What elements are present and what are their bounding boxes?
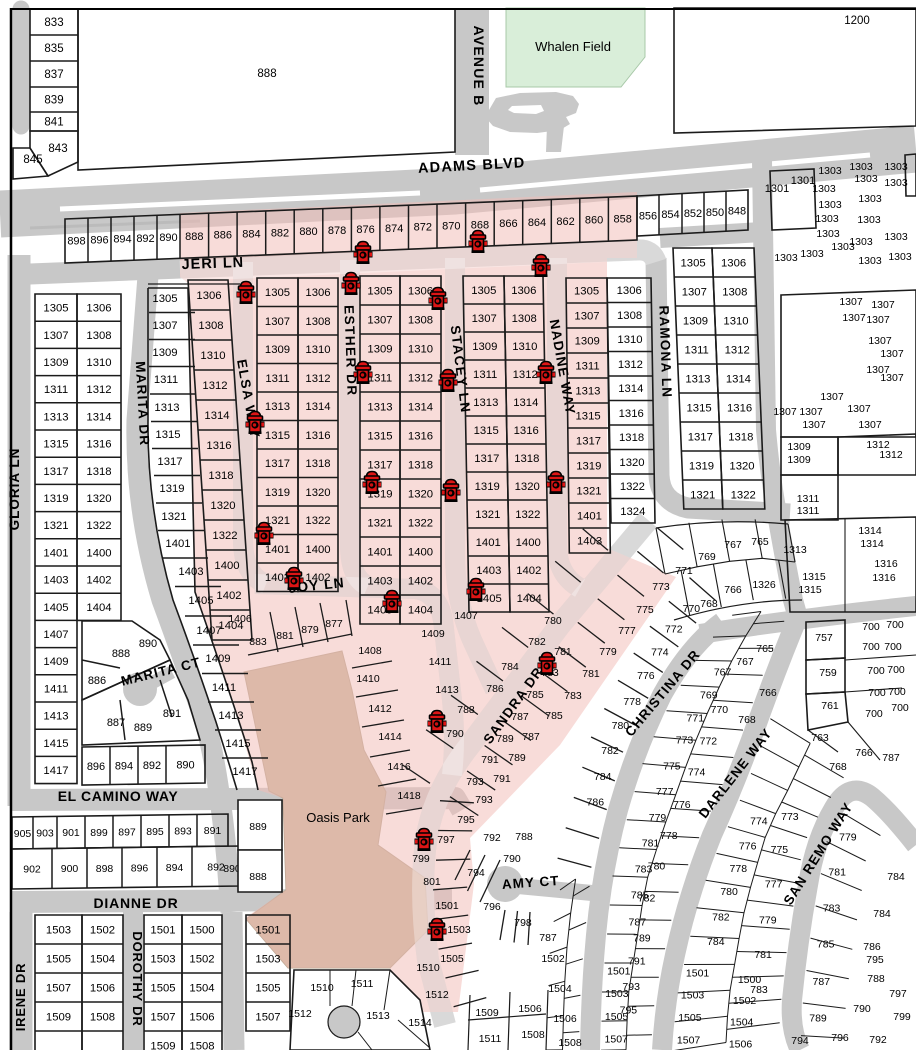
svg-text:1314: 1314 xyxy=(860,538,884,550)
svg-text:1307: 1307 xyxy=(367,315,392,327)
svg-text:1410: 1410 xyxy=(356,673,380,685)
svg-text:1307: 1307 xyxy=(866,314,890,326)
svg-text:1317: 1317 xyxy=(367,460,392,472)
svg-text:784: 784 xyxy=(594,771,612,783)
svg-text:1320: 1320 xyxy=(86,493,111,505)
svg-text:787: 787 xyxy=(539,932,557,944)
svg-text:1307: 1307 xyxy=(799,406,823,418)
svg-text:895: 895 xyxy=(146,826,164,838)
svg-text:790: 790 xyxy=(503,853,521,865)
svg-text:1403: 1403 xyxy=(178,566,203,578)
svg-text:1321: 1321 xyxy=(576,486,601,498)
svg-text:1318: 1318 xyxy=(728,432,753,444)
svg-text:1506: 1506 xyxy=(90,983,115,995)
svg-text:1303: 1303 xyxy=(816,228,840,240)
svg-text:1508: 1508 xyxy=(521,1029,545,1041)
svg-text:1316: 1316 xyxy=(206,440,231,452)
svg-text:1511: 1511 xyxy=(479,1033,502,1045)
svg-text:1411: 1411 xyxy=(212,682,236,694)
svg-text:1321: 1321 xyxy=(475,509,500,521)
svg-text:765: 765 xyxy=(756,643,774,655)
svg-text:1309: 1309 xyxy=(575,336,600,348)
svg-text:1408: 1408 xyxy=(358,645,382,657)
svg-text:DIANNE DR: DIANNE DR xyxy=(94,895,179,911)
svg-text:833: 833 xyxy=(44,17,63,29)
svg-text:1311: 1311 xyxy=(473,369,497,381)
svg-text:1414: 1414 xyxy=(378,731,402,743)
svg-text:1401: 1401 xyxy=(577,511,602,523)
svg-text:782: 782 xyxy=(712,912,730,924)
svg-text:1401: 1401 xyxy=(265,544,290,556)
svg-text:1309: 1309 xyxy=(683,316,708,328)
svg-text:1316: 1316 xyxy=(408,431,433,443)
svg-text:843: 843 xyxy=(48,143,67,155)
svg-text:1307: 1307 xyxy=(839,296,863,308)
svg-text:781: 781 xyxy=(554,646,572,658)
svg-text:1409: 1409 xyxy=(43,656,68,668)
svg-text:1310: 1310 xyxy=(86,357,111,369)
svg-text:1319: 1319 xyxy=(689,461,714,473)
svg-text:896: 896 xyxy=(87,761,105,773)
svg-text:770: 770 xyxy=(683,603,701,615)
svg-text:1322: 1322 xyxy=(731,490,756,502)
svg-text:1311: 1311 xyxy=(685,345,709,357)
svg-text:1511: 1511 xyxy=(351,978,374,990)
svg-text:892: 892 xyxy=(136,233,154,245)
svg-text:1502: 1502 xyxy=(541,953,565,965)
svg-text:1305: 1305 xyxy=(265,287,290,299)
svg-text:1303: 1303 xyxy=(888,251,912,263)
svg-text:765: 765 xyxy=(751,536,769,548)
svg-text:794: 794 xyxy=(791,1035,809,1047)
svg-text:1307: 1307 xyxy=(682,287,707,299)
svg-text:852: 852 xyxy=(684,208,702,220)
svg-text:700: 700 xyxy=(865,708,883,720)
svg-text:1305: 1305 xyxy=(574,286,599,298)
svg-text:1307: 1307 xyxy=(847,403,871,415)
svg-text:1404: 1404 xyxy=(408,605,433,617)
svg-text:793: 793 xyxy=(622,981,640,993)
svg-text:1305: 1305 xyxy=(43,303,68,315)
svg-text:1320: 1320 xyxy=(408,489,433,501)
svg-text:1403: 1403 xyxy=(43,575,68,587)
svg-text:1307: 1307 xyxy=(842,312,866,324)
svg-text:1412: 1412 xyxy=(368,703,392,715)
svg-text:1308: 1308 xyxy=(512,313,537,325)
svg-text:1317: 1317 xyxy=(157,456,182,468)
svg-text:1303: 1303 xyxy=(884,231,908,243)
svg-text:1322: 1322 xyxy=(305,515,330,527)
svg-text:792: 792 xyxy=(483,832,501,844)
svg-text:1307: 1307 xyxy=(802,419,826,431)
svg-text:1312: 1312 xyxy=(513,369,538,381)
svg-text:1411: 1411 xyxy=(44,683,68,695)
svg-text:1308: 1308 xyxy=(722,287,747,299)
svg-text:780: 780 xyxy=(544,615,562,627)
svg-text:1401: 1401 xyxy=(43,547,68,559)
svg-text:900: 900 xyxy=(61,863,79,875)
svg-text:1508: 1508 xyxy=(189,1041,214,1050)
svg-text:796: 796 xyxy=(483,901,501,913)
svg-text:894: 894 xyxy=(113,234,131,246)
svg-text:1309: 1309 xyxy=(265,344,290,356)
svg-text:837: 837 xyxy=(44,69,63,81)
svg-text:888: 888 xyxy=(257,68,276,80)
svg-text:789: 789 xyxy=(508,752,526,764)
svg-text:1509: 1509 xyxy=(150,1041,175,1050)
svg-text:1311: 1311 xyxy=(797,493,820,505)
svg-text:1309: 1309 xyxy=(43,357,68,369)
svg-text:845: 845 xyxy=(23,154,42,166)
svg-text:888: 888 xyxy=(112,648,130,660)
svg-text:888: 888 xyxy=(249,871,267,883)
svg-text:1315: 1315 xyxy=(687,403,712,415)
svg-text:872: 872 xyxy=(414,222,432,234)
svg-text:776: 776 xyxy=(739,840,757,852)
svg-text:866: 866 xyxy=(499,218,517,230)
svg-text:1313: 1313 xyxy=(473,397,498,409)
svg-text:899: 899 xyxy=(90,827,108,839)
svg-text:1312: 1312 xyxy=(618,359,643,371)
svg-text:1407: 1407 xyxy=(454,610,478,622)
svg-text:1406: 1406 xyxy=(228,613,252,625)
svg-text:1506: 1506 xyxy=(553,1013,577,1025)
svg-text:1303: 1303 xyxy=(818,165,842,177)
svg-text:1306: 1306 xyxy=(511,285,536,297)
svg-text:1303: 1303 xyxy=(849,236,873,248)
svg-text:1320: 1320 xyxy=(619,457,644,469)
svg-text:1309: 1309 xyxy=(472,341,497,353)
svg-text:839: 839 xyxy=(44,95,63,107)
svg-text:1311: 1311 xyxy=(797,505,820,517)
svg-text:891: 891 xyxy=(163,708,181,720)
svg-text:1506: 1506 xyxy=(189,1012,214,1024)
svg-text:799: 799 xyxy=(893,1011,911,1023)
svg-text:1313: 1313 xyxy=(685,374,710,386)
svg-text:774: 774 xyxy=(688,767,706,779)
svg-text:700: 700 xyxy=(867,665,885,677)
svg-text:888: 888 xyxy=(185,231,203,243)
svg-text:1503: 1503 xyxy=(46,925,71,937)
svg-text:1402: 1402 xyxy=(516,565,541,577)
svg-text:784: 784 xyxy=(501,661,519,673)
svg-text:777: 777 xyxy=(656,786,674,798)
svg-text:767: 767 xyxy=(724,539,742,551)
svg-text:791: 791 xyxy=(628,956,646,968)
svg-text:878: 878 xyxy=(328,225,346,237)
svg-text:1321: 1321 xyxy=(690,490,715,502)
svg-text:780: 780 xyxy=(720,886,738,898)
svg-text:1503: 1503 xyxy=(255,954,280,966)
svg-text:1320: 1320 xyxy=(729,461,754,473)
svg-text:889: 889 xyxy=(134,722,152,734)
svg-text:795: 795 xyxy=(866,954,884,966)
svg-text:1315: 1315 xyxy=(155,429,180,441)
svg-text:799: 799 xyxy=(412,853,430,865)
svg-text:1505: 1505 xyxy=(440,953,464,965)
svg-text:778: 778 xyxy=(623,696,641,708)
svg-text:896: 896 xyxy=(90,235,108,247)
svg-text:862: 862 xyxy=(556,216,574,228)
svg-text:1508: 1508 xyxy=(558,1037,582,1049)
svg-text:1501: 1501 xyxy=(435,900,459,912)
svg-text:Whalen Field: Whalen Field xyxy=(535,39,611,54)
svg-text:1403: 1403 xyxy=(476,565,501,577)
svg-text:1321: 1321 xyxy=(161,511,186,523)
svg-text:848: 848 xyxy=(728,206,746,218)
svg-text:771: 771 xyxy=(687,712,705,724)
svg-text:1307: 1307 xyxy=(880,372,904,384)
svg-text:1318: 1318 xyxy=(208,470,233,482)
svg-text:1310: 1310 xyxy=(408,344,433,356)
svg-text:1400: 1400 xyxy=(214,560,239,572)
svg-text:1505: 1505 xyxy=(255,983,280,995)
svg-text:1506: 1506 xyxy=(518,1003,542,1015)
svg-text:1312: 1312 xyxy=(408,373,433,385)
svg-text:1510: 1510 xyxy=(310,982,334,994)
svg-text:1315: 1315 xyxy=(474,425,499,437)
svg-text:890: 890 xyxy=(139,638,157,650)
svg-text:1409: 1409 xyxy=(421,628,445,640)
svg-text:1501: 1501 xyxy=(150,925,175,937)
svg-text:1318: 1318 xyxy=(408,460,433,472)
svg-text:894: 894 xyxy=(115,760,133,772)
svg-text:1307: 1307 xyxy=(43,330,68,342)
svg-text:773: 773 xyxy=(652,581,670,593)
svg-text:793: 793 xyxy=(466,776,484,788)
svg-text:1314: 1314 xyxy=(858,525,882,537)
svg-text:1301: 1301 xyxy=(765,183,789,195)
svg-text:1316: 1316 xyxy=(305,430,330,442)
svg-text:797: 797 xyxy=(889,988,907,1000)
svg-text:1400: 1400 xyxy=(408,547,433,559)
svg-text:1303: 1303 xyxy=(858,255,882,267)
svg-text:1502: 1502 xyxy=(90,925,115,937)
svg-text:768: 768 xyxy=(738,714,756,726)
svg-text:1308: 1308 xyxy=(86,330,111,342)
svg-text:1319: 1319 xyxy=(576,461,601,473)
svg-text:1501: 1501 xyxy=(255,925,280,937)
svg-text:1402: 1402 xyxy=(86,575,111,587)
svg-text:784: 784 xyxy=(873,908,891,920)
svg-text:890: 890 xyxy=(159,232,177,244)
svg-text:1311: 1311 xyxy=(265,373,289,385)
svg-text:1402: 1402 xyxy=(408,576,433,588)
svg-text:882: 882 xyxy=(271,227,289,239)
svg-text:1309: 1309 xyxy=(787,454,811,466)
svg-text:877: 877 xyxy=(325,618,343,630)
svg-text:DOROTHY DR: DOROTHY DR xyxy=(130,931,145,1026)
svg-text:1303: 1303 xyxy=(849,161,873,173)
svg-text:1507: 1507 xyxy=(677,1035,701,1047)
svg-text:1402: 1402 xyxy=(216,590,241,602)
svg-text:902: 902 xyxy=(23,864,41,876)
svg-text:1401: 1401 xyxy=(165,538,190,550)
svg-text:1318: 1318 xyxy=(514,453,539,465)
svg-text:785: 785 xyxy=(545,710,563,722)
svg-text:1308: 1308 xyxy=(617,310,642,322)
svg-text:1413: 1413 xyxy=(43,711,68,723)
svg-text:781: 781 xyxy=(582,668,600,680)
svg-text:1401: 1401 xyxy=(367,547,392,559)
svg-text:1314: 1314 xyxy=(305,401,330,413)
svg-text:1313: 1313 xyxy=(367,402,392,414)
svg-text:1315: 1315 xyxy=(798,584,822,596)
svg-text:791: 791 xyxy=(493,773,511,785)
svg-text:1310: 1310 xyxy=(200,350,225,362)
svg-text:788: 788 xyxy=(515,831,533,843)
svg-text:1310: 1310 xyxy=(617,334,642,346)
svg-text:887: 887 xyxy=(107,717,125,729)
svg-text:EL CAMINO WAY: EL CAMINO WAY xyxy=(58,788,179,804)
svg-text:1303: 1303 xyxy=(812,183,836,195)
svg-text:1306: 1306 xyxy=(721,258,746,270)
svg-text:795: 795 xyxy=(457,814,475,826)
svg-text:1320: 1320 xyxy=(210,500,235,512)
svg-text:1319: 1319 xyxy=(265,487,290,499)
svg-text:1322: 1322 xyxy=(212,530,237,542)
svg-text:858: 858 xyxy=(614,214,632,226)
svg-text:894: 894 xyxy=(166,862,184,874)
svg-text:1507: 1507 xyxy=(605,1034,629,1046)
svg-text:905: 905 xyxy=(14,828,32,840)
svg-text:1401: 1401 xyxy=(476,537,501,549)
svg-text:850: 850 xyxy=(706,207,724,219)
svg-text:1505: 1505 xyxy=(46,954,71,966)
svg-text:876: 876 xyxy=(356,224,374,236)
svg-text:1319: 1319 xyxy=(159,483,184,495)
svg-text:889: 889 xyxy=(249,821,267,833)
svg-text:787: 787 xyxy=(882,752,900,764)
svg-text:1500: 1500 xyxy=(189,925,214,937)
svg-text:1310: 1310 xyxy=(512,341,537,353)
svg-text:777: 777 xyxy=(765,879,783,891)
svg-text:1322: 1322 xyxy=(515,509,540,521)
svg-text:1322: 1322 xyxy=(620,481,645,493)
svg-text:868: 868 xyxy=(471,219,489,231)
svg-text:1503: 1503 xyxy=(447,924,471,936)
svg-text:874: 874 xyxy=(385,223,403,235)
svg-text:1306: 1306 xyxy=(617,285,642,297)
svg-text:1317: 1317 xyxy=(43,466,68,478)
svg-text:1318: 1318 xyxy=(86,466,111,478)
svg-text:1317: 1317 xyxy=(576,436,601,448)
svg-text:886: 886 xyxy=(88,675,106,687)
svg-text:789: 789 xyxy=(809,1012,827,1024)
svg-text:1316: 1316 xyxy=(872,572,896,584)
svg-text:700: 700 xyxy=(891,702,909,714)
svg-text:1200: 1200 xyxy=(844,15,870,27)
svg-text:1316: 1316 xyxy=(619,408,644,420)
svg-text:1320: 1320 xyxy=(515,481,540,493)
svg-text:1514: 1514 xyxy=(408,1017,432,1029)
svg-text:1322: 1322 xyxy=(408,518,433,530)
svg-text:1316: 1316 xyxy=(514,425,539,437)
svg-text:766: 766 xyxy=(724,584,742,596)
svg-text:1303: 1303 xyxy=(858,193,882,205)
svg-text:1400: 1400 xyxy=(516,537,541,549)
svg-text:1400: 1400 xyxy=(305,544,330,556)
svg-text:1303: 1303 xyxy=(800,248,824,260)
svg-text:1318: 1318 xyxy=(619,432,644,444)
svg-text:1312: 1312 xyxy=(725,345,750,357)
svg-text:782: 782 xyxy=(638,892,656,904)
svg-text:766: 766 xyxy=(759,687,777,699)
svg-text:772: 772 xyxy=(665,624,683,636)
svg-text:774: 774 xyxy=(750,816,768,828)
svg-text:1307: 1307 xyxy=(152,320,177,332)
svg-text:1306: 1306 xyxy=(86,303,111,315)
svg-text:1505: 1505 xyxy=(678,1012,702,1024)
svg-text:779: 779 xyxy=(839,831,857,843)
svg-text:1306: 1306 xyxy=(305,287,330,299)
svg-text:1504: 1504 xyxy=(189,983,214,995)
svg-text:1315: 1315 xyxy=(576,411,601,423)
svg-text:792: 792 xyxy=(869,1034,887,1046)
svg-text:1303: 1303 xyxy=(884,161,908,173)
svg-text:1310: 1310 xyxy=(723,316,748,328)
svg-text:801: 801 xyxy=(423,876,441,888)
svg-text:1303: 1303 xyxy=(857,214,881,226)
svg-text:898: 898 xyxy=(67,236,85,248)
svg-text:1307: 1307 xyxy=(868,335,892,347)
svg-text:700: 700 xyxy=(887,664,905,676)
svg-text:779: 779 xyxy=(599,646,617,658)
svg-text:AVENUE B: AVENUE B xyxy=(471,26,487,107)
svg-text:1313: 1313 xyxy=(265,401,290,413)
svg-text:787: 787 xyxy=(629,916,647,928)
svg-text:1303: 1303 xyxy=(854,173,878,185)
svg-text:786: 786 xyxy=(863,941,881,953)
svg-text:790: 790 xyxy=(446,728,464,740)
svg-text:1504: 1504 xyxy=(90,954,115,966)
svg-text:898: 898 xyxy=(96,863,114,875)
svg-text:777: 777 xyxy=(618,625,636,637)
svg-text:1502: 1502 xyxy=(189,954,214,966)
svg-text:1314: 1314 xyxy=(408,402,433,414)
svg-text:1324: 1324 xyxy=(620,506,645,518)
svg-text:1513: 1513 xyxy=(366,1010,390,1022)
svg-text:883: 883 xyxy=(249,636,267,648)
svg-text:1307: 1307 xyxy=(820,391,844,403)
svg-text:Oasis Park: Oasis Park xyxy=(306,810,370,825)
svg-text:1309: 1309 xyxy=(152,347,177,359)
svg-text:1316: 1316 xyxy=(727,403,752,415)
svg-text:1313: 1313 xyxy=(575,386,600,398)
svg-text:881: 881 xyxy=(276,630,294,642)
svg-text:1307: 1307 xyxy=(773,406,797,418)
svg-text:1313: 1313 xyxy=(154,402,179,414)
svg-text:1316: 1316 xyxy=(874,558,898,570)
svg-text:700: 700 xyxy=(862,641,880,653)
svg-text:886: 886 xyxy=(214,230,232,242)
svg-text:1509: 1509 xyxy=(475,1007,499,1019)
svg-text:767: 767 xyxy=(736,656,754,668)
svg-text:1418: 1418 xyxy=(397,790,421,802)
svg-text:1305: 1305 xyxy=(152,293,177,305)
svg-text:1321: 1321 xyxy=(43,520,68,532)
svg-text:784: 784 xyxy=(887,871,905,883)
svg-text:1308: 1308 xyxy=(305,316,330,328)
svg-text:897: 897 xyxy=(118,826,136,838)
svg-text:1501: 1501 xyxy=(686,968,710,980)
svg-text:1316: 1316 xyxy=(86,439,111,451)
svg-text:1505: 1505 xyxy=(150,983,175,995)
svg-text:771: 771 xyxy=(675,565,693,577)
svg-text:1512: 1512 xyxy=(288,1008,312,1020)
svg-text:1310: 1310 xyxy=(305,344,330,356)
svg-text:781: 781 xyxy=(828,867,846,879)
